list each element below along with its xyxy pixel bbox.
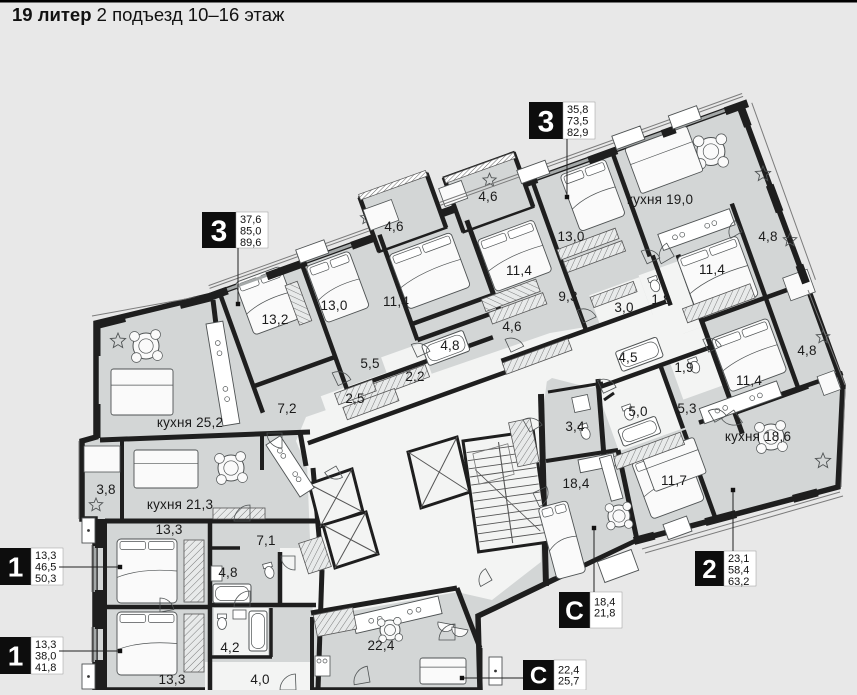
svg-text:кухня 21,3: кухня 21,3 [147, 497, 213, 512]
svg-text:кухня 25,2: кухня 25,2 [157, 415, 223, 430]
svg-text:89,6: 89,6 [240, 237, 261, 249]
svg-text:4,2: 4,2 [220, 640, 239, 655]
svg-text:13,0: 13,0 [320, 298, 347, 313]
svg-text:82,9: 82,9 [567, 127, 588, 139]
svg-text:1,8: 1,8 [651, 292, 670, 307]
svg-text:11,4: 11,4 [699, 262, 725, 277]
svg-text:1: 1 [8, 552, 24, 583]
svg-text:4,6: 4,6 [384, 219, 403, 234]
svg-text:3,0: 3,0 [614, 300, 633, 315]
svg-text:4,5: 4,5 [618, 350, 637, 365]
svg-text:11,7: 11,7 [661, 473, 687, 488]
svg-text:4,8: 4,8 [440, 338, 459, 353]
svg-text:С: С [565, 595, 584, 625]
svg-text:38,0: 38,0 [35, 651, 56, 663]
svg-text:3,4: 3,4 [565, 419, 585, 434]
svg-text:13,3: 13,3 [35, 639, 56, 651]
svg-text:13,3: 13,3 [35, 550, 56, 562]
svg-text:3: 3 [538, 105, 555, 138]
svg-text:73,5: 73,5 [567, 116, 588, 128]
svg-text:4,6: 4,6 [478, 189, 497, 204]
svg-text:58,4: 58,4 [728, 565, 749, 577]
svg-text:13,3: 13,3 [155, 522, 182, 537]
svg-text:7,2: 7,2 [277, 401, 296, 416]
svg-text:18,4: 18,4 [562, 476, 589, 491]
svg-text:2,5: 2,5 [345, 391, 364, 406]
svg-text:4,8: 4,8 [218, 565, 237, 580]
svg-text:11,4: 11,4 [736, 373, 762, 388]
svg-text:4,8: 4,8 [797, 343, 816, 358]
svg-text:25,7: 25,7 [558, 676, 579, 688]
svg-text:3,8: 3,8 [96, 482, 115, 497]
svg-text:13,2: 13,2 [261, 312, 288, 327]
svg-text:50,3: 50,3 [35, 573, 56, 585]
svg-text:4,8: 4,8 [758, 229, 777, 244]
svg-text:4,6: 4,6 [502, 319, 521, 334]
svg-text:35,8: 35,8 [567, 104, 588, 116]
svg-text:5,0: 5,0 [628, 404, 647, 419]
svg-text:2,2: 2,2 [405, 369, 424, 384]
svg-text:63,2: 63,2 [728, 576, 749, 588]
svg-text:4,0: 4,0 [250, 672, 269, 687]
svg-text:кухня 19,0: кухня 19,0 [627, 192, 693, 207]
svg-text:5,3: 5,3 [677, 401, 696, 416]
svg-text:19 литер 2 подъезд 10–16 этаж: 19 литер 2 подъезд 10–16 этаж [12, 4, 285, 25]
svg-text:22,4: 22,4 [367, 638, 394, 653]
svg-text:3: 3 [211, 215, 228, 248]
svg-text:85,0: 85,0 [240, 226, 261, 238]
svg-text:46,5: 46,5 [35, 562, 56, 574]
svg-text:37,6: 37,6 [240, 214, 261, 226]
svg-text:5,5: 5,5 [360, 356, 379, 371]
svg-text:21,8: 21,8 [594, 608, 615, 620]
svg-text:23,1: 23,1 [728, 553, 749, 565]
svg-text:1,9: 1,9 [674, 360, 693, 375]
svg-text:1: 1 [8, 641, 24, 672]
svg-text:2: 2 [702, 554, 716, 584]
svg-text:11,4: 11,4 [506, 263, 532, 278]
svg-text:С: С [530, 663, 547, 690]
svg-text:41,8: 41,8 [35, 662, 56, 674]
svg-text:13,3: 13,3 [158, 672, 185, 687]
svg-text:7,1: 7,1 [256, 533, 275, 548]
svg-text:кухня 18,6: кухня 18,6 [725, 429, 791, 444]
svg-text:9,3: 9,3 [558, 289, 577, 304]
svg-text:13,0: 13,0 [557, 229, 584, 244]
svg-text:11,4: 11,4 [383, 294, 409, 309]
